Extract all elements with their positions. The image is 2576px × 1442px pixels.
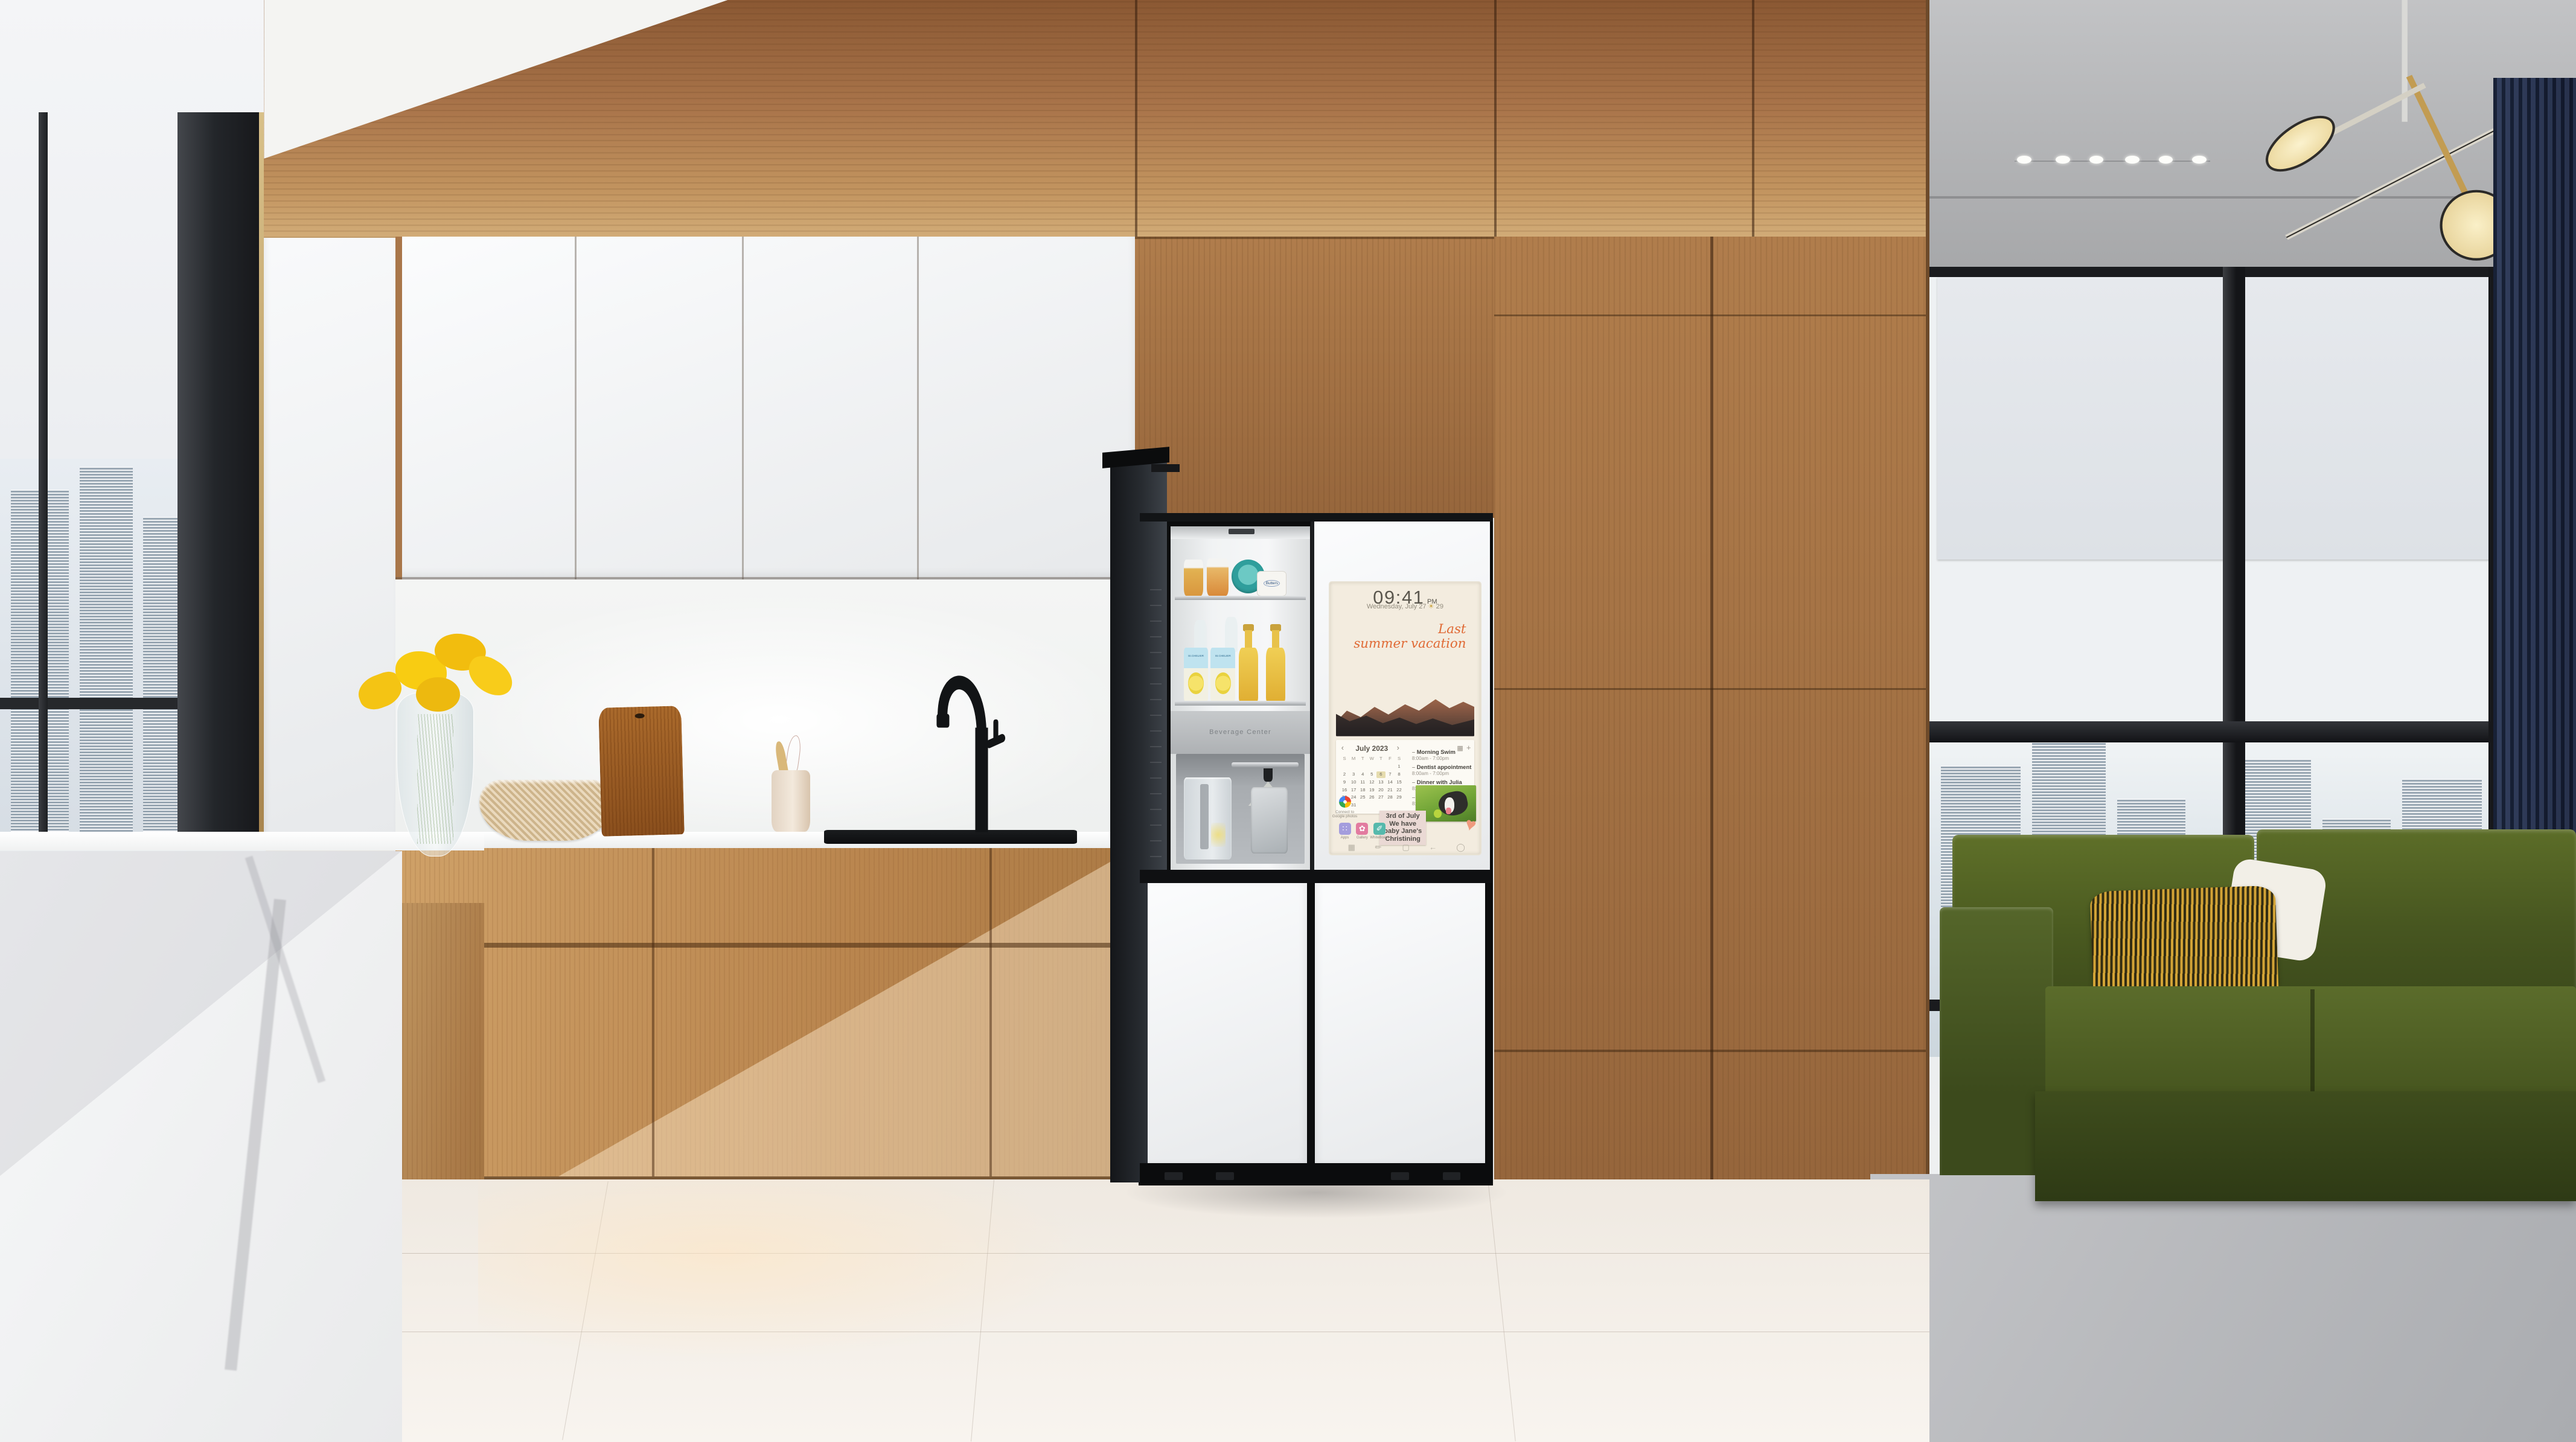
weekday: T (1376, 756, 1385, 761)
calendar-day[interactable] (1376, 802, 1385, 809)
event-bullet: – (1412, 764, 1415, 770)
gp-caption-line1: Connect to (1331, 810, 1358, 815)
track-light (2017, 156, 2031, 164)
wicker-basket (479, 780, 613, 840)
weekday: F (1385, 756, 1395, 761)
city-tower (80, 467, 133, 845)
whiteboard-glyph: ✐ (1376, 824, 1383, 834)
calendar-title: July 2023 (1350, 745, 1394, 753)
event-title: Morning Swim (1417, 749, 1456, 755)
whiteboard-app-icon[interactable]: ✐ (1373, 823, 1385, 835)
weekday: S (1340, 756, 1349, 761)
note-line: baby Jane's (1379, 828, 1426, 835)
wood-wall-seam (1494, 1050, 1929, 1052)
juice-bottle (1266, 648, 1285, 703)
wood-wall-above-fridge (1133, 237, 1497, 518)
calendar-day[interactable]: 27 (1376, 794, 1385, 801)
calendar-day[interactable]: 12 (1367, 779, 1376, 786)
screen-dateline: Wednesday, July 27 ☀ 29 (1330, 603, 1481, 611)
calendar-weekday-row: SMTWTFS (1340, 756, 1404, 761)
event-time: 8:00am - 7:00pm (1412, 771, 1472, 776)
event-bullet: – (1412, 749, 1415, 755)
weekday: T (1358, 756, 1367, 761)
freezer-base (1140, 1163, 1491, 1184)
juice-bottle (1239, 648, 1258, 703)
clear-bottle (1225, 617, 1238, 651)
navy-curtain (2493, 78, 2576, 946)
calendar-day[interactable] (1340, 764, 1349, 770)
calendar-day[interactable] (1376, 764, 1385, 770)
freezer-door-left (1148, 883, 1308, 1163)
track-light-rail (2015, 161, 2210, 162)
calendar-day[interactable]: 25 (1358, 794, 1367, 801)
right-window-midrail (1929, 721, 2499, 743)
drink-can-label: St.CHELIER (1210, 654, 1235, 657)
calendar-day[interactable]: 1 (1395, 764, 1404, 770)
upper-cabinet-seam (575, 237, 577, 580)
calendar-day[interactable] (1385, 764, 1395, 770)
photo-caption-line2: summer vacation (1354, 637, 1466, 651)
fridge-top-cap (1140, 513, 1493, 521)
gallery-app-icon[interactable]: ✿ (1356, 823, 1368, 835)
marble-island (0, 851, 402, 1442)
jam-jar (1184, 560, 1203, 596)
track-light (2089, 156, 2103, 164)
note-line: We have (1379, 820, 1426, 828)
calendar-day[interactable] (1367, 802, 1376, 809)
calendar-day[interactable]: 29 (1395, 794, 1404, 801)
yellow-flowers (358, 631, 528, 739)
event-item[interactable]: – Morning Swim 8:00am - 7:00pm (1412, 749, 1472, 761)
fridge-floor-shadow (1123, 1181, 1509, 1219)
island-shadow-diagonal (0, 851, 402, 1176)
calendar-day[interactable]: 7 (1385, 771, 1395, 778)
fridge-wheel (1216, 1172, 1234, 1180)
wood-wall-seam (1710, 237, 1713, 1179)
screen-date: Wednesday, July 27 (1367, 603, 1427, 610)
calendar-day[interactable]: 2 (1340, 771, 1349, 778)
calendar-day[interactable]: 17 (1349, 787, 1358, 794)
fridge-door-hinge-arm (1151, 464, 1180, 472)
event-title: Dinner with Julia (1417, 779, 1462, 785)
weather-icon: ☀ (1428, 603, 1434, 610)
wood-band-seam (1494, 0, 1497, 238)
fridge-top-door-gap (1311, 519, 1314, 870)
photo-caption: Last summer vacation (1354, 622, 1466, 651)
calendar-day[interactable]: 16 (1340, 787, 1349, 794)
screen-temp: 29 (1436, 603, 1443, 610)
calendar-day[interactable]: 3 (1349, 771, 1358, 778)
calendar-day[interactable] (1358, 802, 1367, 809)
screen-photo[interactable]: Last summer vacation (1336, 614, 1475, 736)
floor-tile-seam (1488, 1180, 1516, 1441)
jam-jar (1207, 558, 1229, 596)
calendar-day[interactable]: 14 (1385, 779, 1395, 786)
track-light (2192, 156, 2206, 164)
base-cabinet-seam (989, 848, 992, 1177)
photo-caption-line1: Last (1354, 622, 1466, 636)
calendar-prev-button[interactable]: ‹ (1341, 744, 1344, 753)
right-window-shade (1937, 277, 2494, 560)
track-light (2056, 156, 2069, 164)
calendar-day[interactable] (1385, 802, 1395, 809)
event-time: 8:00am - 7:00pm (1412, 756, 1472, 761)
freezer-door-right (1315, 883, 1485, 1163)
utensil-crock (772, 770, 810, 832)
calendar-next-button[interactable]: › (1397, 744, 1399, 753)
weekday: M (1349, 756, 1358, 761)
weekday: S (1395, 756, 1404, 761)
calendar-day-highlighted[interactable]: 6 (1376, 771, 1385, 778)
calendar-day[interactable] (1395, 802, 1404, 809)
fridge-wheel (1165, 1172, 1183, 1180)
fridge-wheel (1391, 1172, 1409, 1180)
calendar-day[interactable]: 5 (1367, 771, 1376, 778)
google-photos-icon[interactable] (1339, 796, 1351, 808)
calendar-day[interactable]: 9 (1340, 779, 1349, 786)
area-rug (1870, 1174, 2576, 1442)
calendar-day[interactable]: 10 (1349, 779, 1358, 786)
butter-tub: Butters (1257, 571, 1286, 596)
wood-band-seam (1135, 0, 1137, 238)
wood-band-seam (1752, 0, 1754, 238)
event-bullet: – (1412, 779, 1415, 785)
upper-cabinet-wood-edge (395, 237, 402, 580)
calendar-day[interactable]: 26 (1367, 794, 1376, 801)
sofa-seat-seam (2310, 989, 2314, 1096)
calendar-day[interactable]: 18 (1358, 787, 1367, 794)
apps-app-icon[interactable]: ∷ (1339, 823, 1351, 835)
calendar-day[interactable]: 20 (1376, 787, 1385, 794)
kitchen-floor (402, 1179, 1929, 1442)
dispenser-spout (1264, 768, 1273, 782)
upper-cabinets (395, 237, 1135, 580)
fridge-interior-vent (1229, 529, 1254, 535)
apps-glyph: ∷ (1343, 824, 1347, 834)
gp-caption-line2: Google photos (1331, 814, 1358, 819)
track-light (2125, 156, 2139, 164)
calendar-day[interactable]: 8 (1395, 771, 1404, 778)
base-cabinet-seam (652, 848, 654, 1177)
faucet (917, 656, 1015, 835)
wire-shelf-2 (1175, 701, 1306, 706)
gallery-glyph: ✿ (1359, 824, 1366, 834)
beverage-center-label: Beverage Center (1209, 729, 1271, 736)
dispenser-handle-bar[interactable] (1232, 762, 1299, 767)
calendar-day[interactable]: 13 (1376, 779, 1385, 786)
tennis-ball (1434, 809, 1442, 818)
event-bullet: – (1412, 794, 1415, 800)
lemon-drink-can: St.CHELIER (1184, 648, 1209, 703)
calendar-day[interactable] (1367, 764, 1376, 770)
base-drawer-line (395, 943, 1135, 947)
calendar-day[interactable]: 15 (1395, 779, 1404, 786)
nav-recents-icon[interactable]: ▦ (1348, 843, 1355, 852)
lemon-drink-can: St.CHELIER (1210, 648, 1235, 703)
whiteboard-app-label: WhiteBoard (1369, 836, 1390, 840)
calendar-day[interactable]: 4 (1358, 771, 1367, 778)
cutting-board (598, 706, 684, 836)
juice-bottle-neck (1245, 630, 1252, 649)
kitchen-living-scene: Butters St.CHELIER St.CHELIER Beverage C… (0, 0, 2576, 1442)
calendar-day[interactable]: 21 (1385, 787, 1395, 794)
calendar-day[interactable]: 19 (1367, 787, 1376, 794)
freezer-top-band (1140, 870, 1491, 884)
drink-can-label: St.CHELIER (1184, 654, 1209, 657)
calendar-day[interactable] (1358, 764, 1367, 770)
beverage-center-panel: Beverage Center (1171, 711, 1309, 754)
dispenser-pad[interactable] (1251, 787, 1288, 853)
event-title: Dentist appointment (1417, 764, 1472, 770)
left-window-frame-thin (39, 112, 48, 839)
wood-wall-seam (1494, 314, 1929, 317)
left-window-frame-wide (177, 112, 260, 842)
nav-back-icon[interactable]: ← (1429, 843, 1437, 852)
calendar-day[interactable]: 22 (1395, 787, 1404, 794)
calendar-day[interactable] (1349, 764, 1358, 770)
sofa-base (2035, 1091, 2576, 1201)
juice-bottle-neck (1272, 630, 1279, 649)
floor-sunlight-patch (478, 1179, 1089, 1363)
weekday: W (1367, 756, 1376, 761)
nav-pen-icon[interactable]: ✏ (1375, 843, 1382, 852)
note-line: 3rd of July (1379, 812, 1426, 820)
calendar-day[interactable]: 11 (1358, 779, 1367, 786)
right-window-frame-top (1929, 267, 2499, 277)
wood-wall-seam (1494, 688, 1929, 691)
butter-label: Butters (1264, 580, 1280, 587)
fridge-screen[interactable]: 09:41 PM Wednesday, July 27 ☀ 29 Last su… (1330, 582, 1481, 854)
water-pitcher[interactable] (1184, 777, 1232, 860)
fridge-wheel (1443, 1172, 1461, 1180)
nav-quick-icon[interactable]: ◯ (1456, 843, 1465, 852)
nav-home-icon[interactable]: ▢ (1402, 843, 1409, 852)
wire-shelf-1 (1175, 596, 1306, 601)
google-photos-caption: Connect to Google photos (1331, 810, 1358, 819)
dog-tongue (1446, 808, 1451, 814)
upper-cabinet-seam (742, 237, 744, 580)
event-item[interactable]: – Dentist appointment 8:00am - 7:00pm (1412, 764, 1472, 776)
calendar-day[interactable]: 28 (1385, 794, 1395, 801)
upper-cabinet-seam (917, 237, 919, 580)
